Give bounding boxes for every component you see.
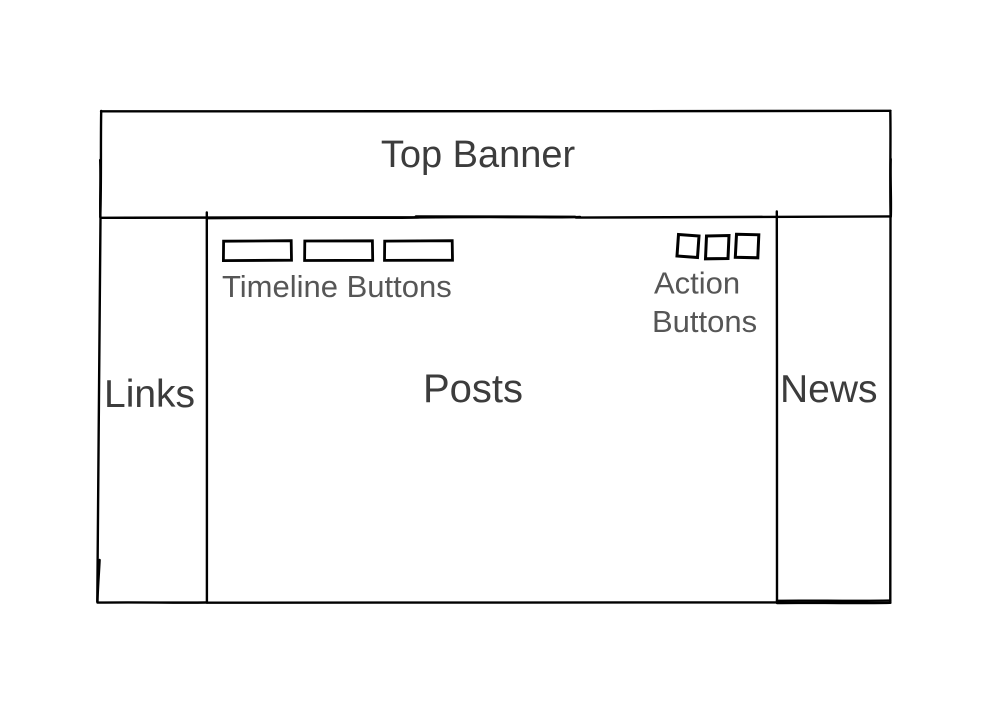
svg-text:Top Banner: Top Banner	[381, 134, 576, 176]
svg-text:Action: Action	[654, 266, 740, 301]
svg-text:Posts: Posts	[423, 367, 523, 411]
svg-text:Buttons: Buttons	[652, 304, 757, 339]
svg-text:Links: Links	[104, 373, 195, 416]
svg-text:Timeline Buttons: Timeline Buttons	[222, 269, 452, 304]
svg-text:News: News	[780, 368, 878, 411]
